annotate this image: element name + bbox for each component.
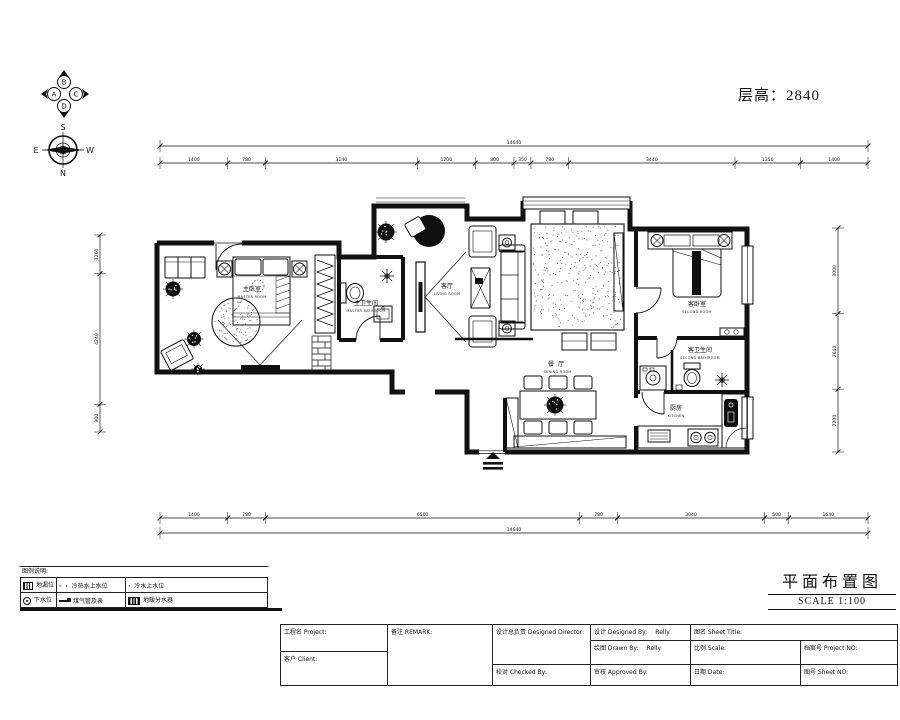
legend-item-label: 下水位 [34, 597, 52, 604]
dim-label: 500 [772, 512, 781, 518]
dim-label: 14640 [507, 527, 522, 533]
master-bath-fixtures [340, 269, 394, 322]
closet-row [648, 232, 732, 249]
cold-water-icon: · [128, 583, 131, 590]
living-furniture [469, 211, 624, 350]
remark-cell: 备注 REMARK: [388, 625, 492, 685]
label-kitchen-en: KITCHEN [668, 414, 685, 418]
label-master-bath-en: MASTER BATHROOM [346, 309, 385, 313]
legend-item-label: 冷水上水位 [134, 583, 164, 590]
floor-height-note: 层高：2840 [738, 84, 820, 105]
label-dining: 餐厅 [548, 360, 568, 368]
entry-icon [483, 452, 503, 470]
compass-e: E [33, 146, 38, 155]
nightstand-right [292, 261, 307, 277]
scale-cell: 比例 Scale: [691, 641, 801, 664]
label-second-bath-en: SECOND BATHROOM [680, 356, 720, 360]
door-master-bath [356, 316, 380, 340]
door-second-bedroom [636, 288, 661, 313]
ceiling-light-2 [715, 373, 729, 387]
dim-label: 780 [594, 512, 603, 518]
floor-drain-icon [23, 582, 33, 590]
nightstand-left [217, 261, 232, 277]
dim-label: 1350 [762, 157, 774, 163]
toilet-second [684, 363, 700, 387]
dining-sideboard [514, 436, 626, 448]
label-living: 客厅 [441, 282, 453, 290]
door-second-bath [657, 338, 677, 358]
tv-master [218, 320, 302, 372]
ceiling-light [380, 269, 394, 283]
dim-label: 3440 [646, 157, 658, 163]
door-kitchen [642, 392, 664, 414]
sofa-three-seat [499, 245, 525, 329]
side-table-top [499, 235, 515, 250]
legend-item-label: 地漏位 [36, 582, 54, 589]
designed-label: 设计 Designed By: [594, 629, 647, 636]
pillow [235, 259, 261, 275]
dim-label: 4240 [94, 333, 100, 345]
director-cell: 设计总负责 Designed Director: [493, 625, 590, 665]
sheet-title-rule [768, 594, 896, 595]
compass-rose: S E W N [33, 123, 94, 178]
sheet-scale-rule [768, 609, 896, 610]
coffee-table [471, 268, 490, 308]
checked-cell: 校对 Checked By: [493, 665, 590, 685]
dim-label: 780 [242, 512, 251, 518]
label-second-bath: 客卫生间 [688, 346, 712, 354]
dim-label: 900 [94, 414, 100, 423]
drawn-cell: 绘图 Drawn By:Relly [591, 641, 690, 665]
kitchen-sink [724, 399, 738, 427]
entry-cabinet [506, 398, 518, 448]
label-master-bath: 主卫生间 [354, 299, 378, 307]
dim-label: 2200 [832, 415, 838, 427]
quadrant-arrows [41, 70, 89, 118]
label-dining-en: DINING ROOM [544, 370, 571, 374]
second-bath-fixtures [640, 363, 729, 390]
bedroom-armchair [160, 339, 193, 371]
project-no-cell: 档案号 Project NO: [801, 641, 897, 664]
label-second-bedroom-en: SECOND ROOM [682, 310, 711, 314]
dim-label: 1200 [440, 157, 452, 163]
bed-second [673, 249, 721, 297]
window-ledge [376, 198, 465, 202]
legend-item-label: 地暖分水器 [143, 597, 173, 604]
dim-label: 780 [242, 157, 251, 163]
bed-hatch [276, 276, 290, 313]
sheet-title: 平面布置图 [768, 568, 896, 592]
hot-cold-water-icon: · · [59, 583, 69, 590]
quadrant-symbol: A B C D [41, 70, 89, 118]
manifold-icon [128, 597, 140, 605]
stove [688, 429, 718, 446]
legend-title: 图例说明: [20, 566, 268, 577]
sheet-no-cell: 图号 Sheet NO: [801, 665, 897, 685]
dim-label: 3000 [832, 265, 838, 277]
kitchen-fixtures [638, 394, 747, 448]
designed-value: Relly [655, 629, 669, 636]
cabinet-brick [312, 336, 331, 372]
gas-pipe-icon [59, 600, 70, 602]
dim-label: 780 [545, 157, 554, 163]
label-master-bedroom: 主卧室 [243, 285, 261, 293]
tv-living [419, 282, 423, 312]
armchair-top [469, 226, 496, 257]
drain-water-icon [23, 597, 31, 605]
master-bedroom-furniture [160, 255, 335, 372]
window-cushions [540, 211, 598, 224]
dim-label: 3040 [685, 512, 697, 518]
compass-w: W [86, 146, 94, 155]
dim-label: 1400 [188, 512, 200, 518]
bed-master [233, 257, 290, 325]
washing-machine [640, 366, 666, 390]
title-block: 工程名 Project: 客户 Client: 备注 REMARK: 设计总负责… [280, 624, 898, 686]
legend-item-label: 煤气管及表 [73, 598, 103, 605]
label-living-en: LIVING ROOM [434, 292, 460, 296]
sheet-title-cell: 图名 Sheet Title: [691, 625, 897, 641]
date-cell: 日期 Date: [691, 665, 801, 685]
drawn-value: Relly [647, 645, 661, 652]
pillow [263, 259, 288, 275]
living-carpet [531, 224, 624, 330]
plan-canvas: A B C D S E W N [0, 0, 900, 720]
hall-furniture [404, 215, 466, 342]
armchair-bottom [469, 316, 496, 347]
sheet-name-block: 平面布置图 SCALE 1:100 [768, 568, 896, 610]
bedroom-sofa [165, 257, 205, 278]
dim-label: 800 [490, 157, 499, 163]
dim-label: 6500 [417, 512, 429, 518]
label-master-bedroom-en: MASTER ROOM [238, 295, 267, 299]
window-bedroom-right [742, 246, 753, 304]
floor-drain [676, 385, 682, 390]
dim-label: 1260 [94, 248, 100, 260]
dim-label: 14640 [507, 140, 522, 146]
legend-bottom-rule [20, 608, 282, 611]
ottomans [562, 333, 616, 350]
dim-label: 350 [518, 157, 527, 163]
quad-letter-a: A [52, 91, 57, 99]
dim-label: 2640 [832, 346, 838, 358]
project-cell: 工程名 Project: [281, 625, 387, 652]
legend-item-label: 冷热水上水位 [72, 583, 108, 590]
designed-cell: 设计 Designed By:Relly [591, 625, 690, 641]
quad-letter-d: D [61, 103, 66, 111]
tv-wall-panel [416, 252, 466, 342]
client-cell: 客户 Client: [281, 652, 387, 685]
second-bedroom-furniture [648, 232, 744, 336]
dim-label: 1400 [828, 157, 840, 163]
label-kitchen: 厨房 [670, 404, 682, 412]
sheet-scale: SCALE 1:100 [768, 596, 896, 607]
compass-s: S [60, 123, 65, 132]
drawn-label: 绘图 Drawn By: [594, 645, 639, 652]
dining-furniture [506, 376, 626, 448]
label-second-bedroom: 客卧室 [688, 300, 706, 308]
quad-letter-b: B [62, 79, 67, 87]
quad-letter-c: C [74, 91, 79, 99]
dim-label: 1640 [822, 512, 834, 518]
legend: 图例说明: 地漏位 · ·冷热水上水位 ·冷水上水位 下水位 煤气管及表 地暖分… [20, 566, 268, 608]
wardrobe-hangers [315, 255, 335, 333]
dim-label: 3140 [336, 157, 348, 163]
vent-grill [648, 430, 670, 442]
approved-cell: 审核 Approved By: [591, 665, 690, 685]
floorplan-sheet: { "header": { "floor_height_label": "层高：… [0, 0, 900, 720]
dim-label: 1400 [188, 157, 200, 163]
compass-n: N [60, 169, 66, 178]
window-bay [523, 197, 630, 209]
dresser [720, 328, 744, 336]
